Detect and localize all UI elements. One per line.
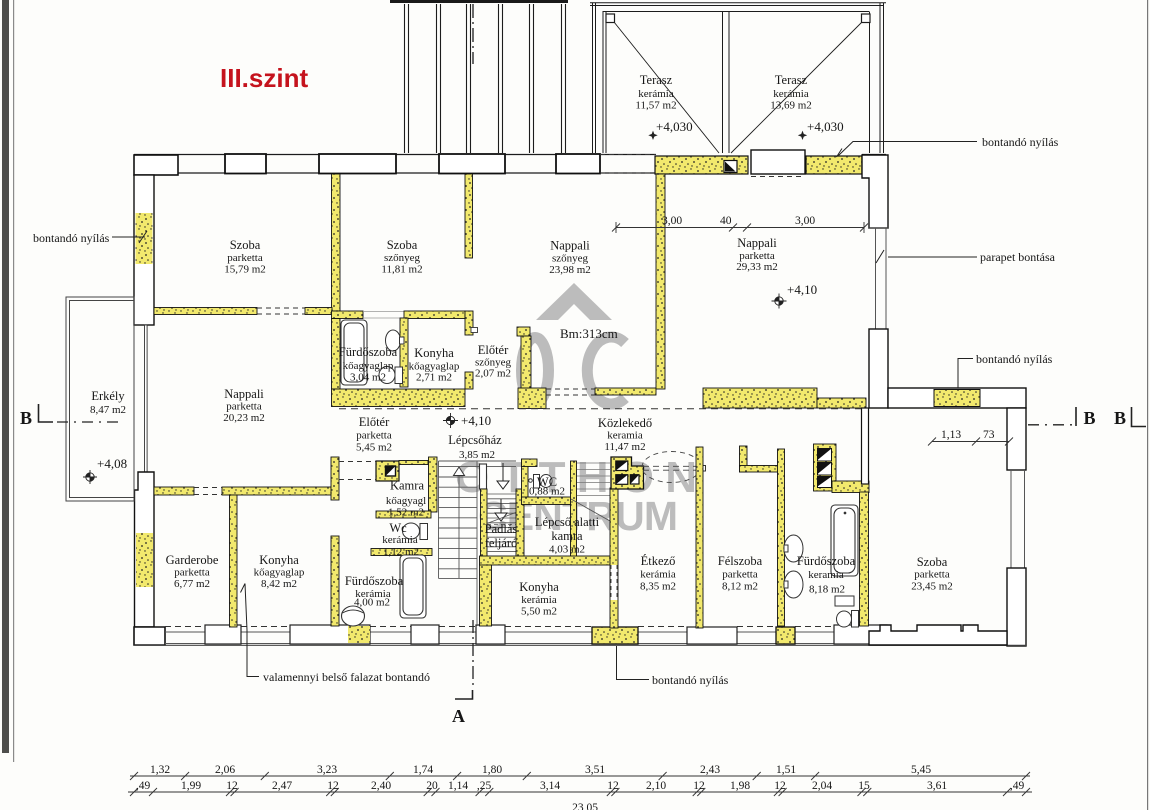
svg-text:5,45: 5,45 [911,764,931,776]
svg-text:B: B [1084,408,1096,428]
svg-text:A: A [452,706,465,726]
svg-text:Wc: Wc [389,521,407,535]
svg-text:3,85 m2: 3,85 m2 [459,449,495,461]
svg-text:23,98 m2: 23,98 m2 [549,264,591,276]
svg-text:6,77 m2: 6,77 m2 [174,578,210,590]
svg-text:parketta: parketta [227,252,263,264]
svg-text:Szoba: Szoba [917,555,948,569]
svg-text:Szoba: Szoba [387,238,418,252]
svg-text:,49: ,49 [136,780,151,792]
svg-text:2,71 m2: 2,71 m2 [416,372,452,384]
svg-text:11,57 m2: 11,57 m2 [635,100,676,112]
svg-text:keramia: keramia [607,430,643,442]
svg-text:Kamra: Kamra [390,479,424,493]
svg-text:feljáró: feljáró [485,536,518,550]
svg-text:Terasz: Terasz [775,73,808,87]
svg-text:bontandó nyílás: bontandó nyílás [652,673,729,687]
svg-text:2,06: 2,06 [215,764,235,776]
svg-text:parketta: parketta [226,401,262,413]
svg-text:3,14: 3,14 [540,780,560,792]
svg-text:kőagyaglap: kőagyaglap [254,567,305,579]
svg-text:Bm:313cm: Bm:313cm [560,326,618,341]
svg-text:parketta: parketta [914,569,950,581]
svg-text:2,43: 2,43 [700,764,720,776]
svg-text:Lépcsőház: Lépcsőház [448,433,502,447]
svg-text:Előtér: Előtér [478,343,509,357]
svg-text:15,79 m2: 15,79 m2 [224,264,266,276]
svg-text:,25: ,25 [477,780,492,792]
svg-text:Erkély: Erkély [91,389,125,403]
svg-text:+4,030: +4,030 [656,119,693,134]
svg-text:12: 12 [774,780,786,792]
svg-text:kerámia: kerámia [773,88,809,100]
svg-text:Nappali: Nappali [224,387,264,401]
svg-text:Fürdőszoba: Fürdőszoba [345,574,404,588]
svg-text:40: 40 [720,215,732,227]
svg-text:2,40: 2,40 [371,780,391,792]
svg-text:Konyha: Konyha [519,580,559,594]
svg-text:+4,030: +4,030 [807,119,844,134]
svg-text:bontandó nyílás: bontandó nyílás [976,352,1053,366]
svg-text:B: B [1114,408,1126,428]
svg-text:parketta: parketta [174,567,210,579]
svg-text:8,12 m2: 8,12 m2 [722,581,758,593]
svg-text:Garderobe: Garderobe [166,553,219,567]
svg-text:1,74: 1,74 [413,764,433,776]
svg-text:1,51: 1,51 [776,764,796,776]
svg-text:parapet bontása: parapet bontása [980,250,1056,264]
svg-text:13,69 m2: 13,69 m2 [770,100,812,112]
svg-text:parketta: parketta [356,430,392,442]
svg-text:1,32: 1,32 [150,764,170,776]
svg-text:kőagyagl: kőagyagl [386,495,426,507]
svg-text:1,13: 1,13 [941,429,961,441]
svg-text:8,42 m2: 8,42 m2 [261,578,297,590]
svg-text:Nappali: Nappali [737,236,777,250]
svg-text:III.szint: III.szint [220,63,308,93]
svg-text:8,47 m2: 8,47 m2 [90,404,126,416]
svg-text:11,47 m2: 11,47 m2 [604,441,645,453]
svg-text:1,12 m2: 1,12 m2 [383,546,419,558]
svg-text:Étkező: Étkező [641,554,676,568]
svg-text:Konyha: Konyha [414,346,454,360]
svg-text:Közlekedő: Közlekedő [598,416,652,430]
svg-text:kerámia: kerámia [638,88,674,100]
svg-text:Nappali: Nappali [550,239,590,253]
svg-text:2,07 m2: 2,07 m2 [475,368,511,380]
svg-text:Padlás: Padlás [485,522,518,536]
svg-text:4,03 m2: 4,03 m2 [549,544,585,556]
svg-text:2,10: 2,10 [646,780,666,792]
svg-text:23,45 m2: 23,45 m2 [911,581,953,593]
svg-text:bontandó nyílás: bontandó nyílás [33,231,110,245]
svg-text:Konyha: Konyha [259,553,299,567]
svg-text:+4,08: +4,08 [97,456,127,471]
svg-text:bontandó nyílás: bontandó nyílás [982,135,1059,149]
svg-text:kerámia: kerámia [521,594,557,606]
svg-text:Lépcső alatti: Lépcső alatti [535,515,600,529]
svg-text:1,52 m2: 1,52 m2 [388,507,424,519]
svg-text:,49: ,49 [1010,780,1025,792]
svg-text:1,98: 1,98 [730,780,750,792]
svg-text:keramia: keramia [808,569,844,581]
svg-text:kerámia: kerámia [640,569,676,581]
svg-text:1,14: 1,14 [448,780,468,792]
svg-text:szőnyeg: szőnyeg [384,252,421,264]
svg-text:4,00 m2: 4,00 m2 [354,597,390,609]
svg-text:3,51: 3,51 [585,764,605,776]
svg-text:+4,10: +4,10 [461,413,491,428]
svg-text:3,04 m2: 3,04 m2 [350,372,386,384]
svg-text:0,88 m2: 0,88 m2 [529,486,565,498]
svg-text:2,04: 2,04 [812,780,832,792]
svg-text:3,00: 3,00 [662,215,682,227]
svg-text:Előtér: Előtér [359,415,390,429]
svg-text:Félszoba: Félszoba [718,554,763,568]
svg-text:11,81 m2: 11,81 m2 [381,264,422,276]
svg-text:1,80: 1,80 [482,764,502,776]
svg-text:Fürdőszoba: Fürdőszoba [797,554,856,568]
svg-text:12: 12 [226,780,238,792]
svg-text:3,00: 3,00 [795,215,815,227]
svg-text:Fürdőszoba: Fürdőszoba [339,345,398,359]
svg-text:12: 12 [693,780,705,792]
svg-text:8,18 m2: 8,18 m2 [809,584,845,596]
svg-text:kerámia: kerámia [382,534,418,546]
svg-text:+4,10: +4,10 [787,282,817,297]
svg-text:20: 20 [426,780,438,792]
svg-text:2,47: 2,47 [272,780,292,792]
svg-text:5,50 m2: 5,50 m2 [521,606,557,618]
svg-text:Szoba: Szoba [230,238,261,252]
svg-text:B: B [20,408,32,428]
svg-text:szőnyeg: szőnyeg [552,253,589,265]
svg-text:kamra: kamra [551,529,583,543]
svg-text:parketta: parketta [722,569,758,581]
svg-text:12: 12 [607,780,619,792]
svg-text:20,23 m2: 20,23 m2 [223,412,265,424]
svg-text:8,35 m2: 8,35 m2 [640,581,676,593]
svg-text:12: 12 [327,780,339,792]
svg-text:3,23: 3,23 [317,764,337,776]
svg-text:15: 15 [858,780,870,792]
svg-text:kőagyaglap: kőagyaglap [343,360,394,372]
svg-text:23,05: 23,05 [572,802,598,810]
svg-text:1,99: 1,99 [181,780,201,792]
svg-text:3,61: 3,61 [927,780,947,792]
svg-text:5,45 m2: 5,45 m2 [356,442,392,454]
svg-text:73: 73 [983,429,995,441]
svg-text:Terasz: Terasz [640,73,673,87]
svg-text:valamennyi belső falazat bonta: valamennyi belső falazat bontandó [263,670,430,684]
svg-text:29,33 m2: 29,33 m2 [736,261,778,273]
